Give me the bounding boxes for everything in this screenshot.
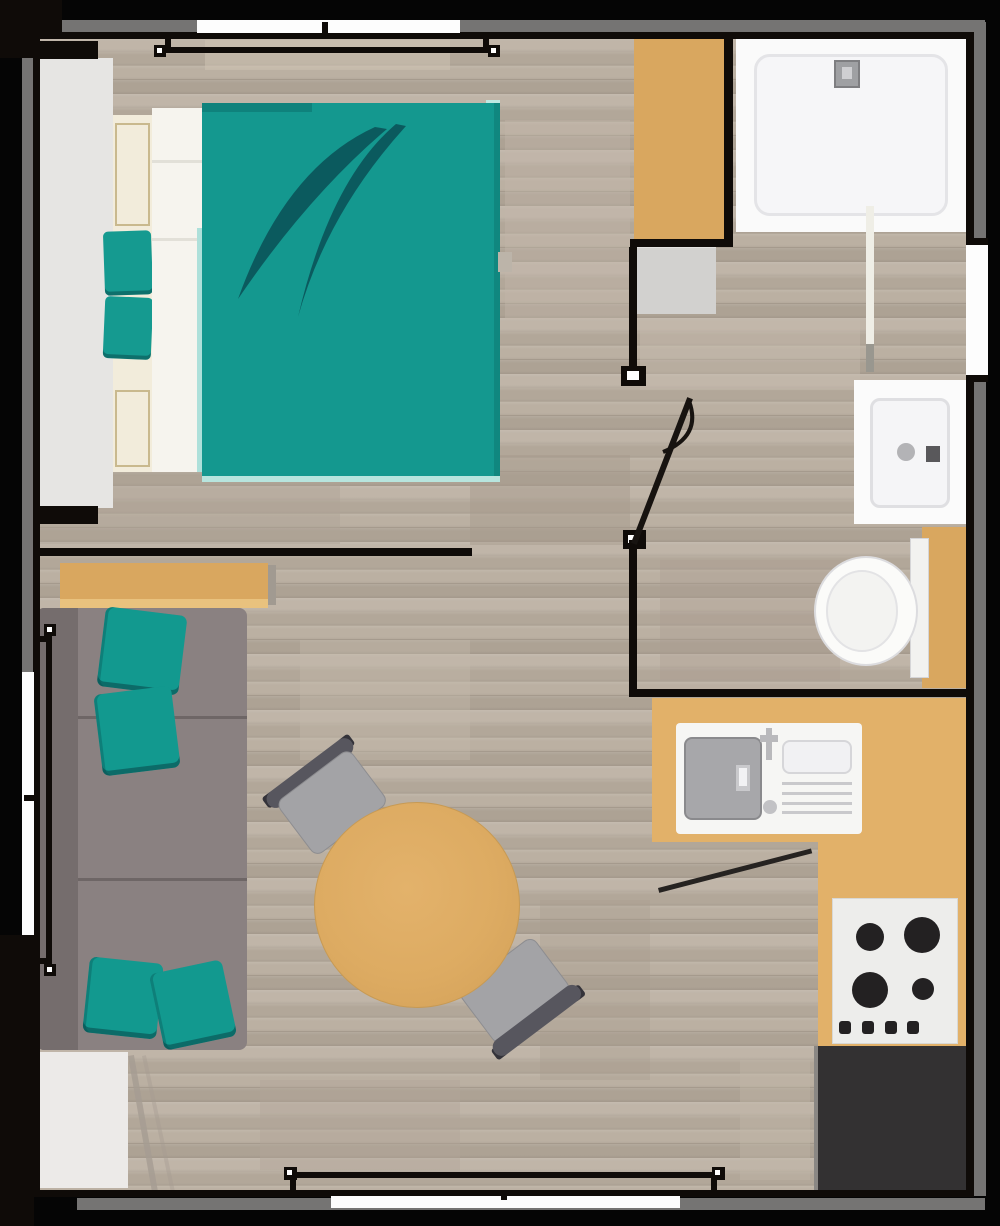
window-tick xyxy=(501,1192,507,1200)
window-rail-top xyxy=(165,47,489,53)
window-cap xyxy=(966,375,988,382)
wall-bedroom-divider xyxy=(33,548,472,556)
floor-plank-patch xyxy=(260,1080,460,1170)
washbasin xyxy=(854,380,966,524)
sofa-seam xyxy=(78,878,247,881)
faucet-icon xyxy=(766,728,772,760)
wall-bathroom xyxy=(629,540,637,697)
rail-bracket-dot xyxy=(47,627,52,632)
sheet-fold xyxy=(152,160,205,163)
sofa-cushion xyxy=(96,606,187,695)
console-edge xyxy=(60,599,268,608)
floor-plank-patch xyxy=(640,320,860,390)
rail-bracket xyxy=(712,1167,725,1180)
bed-pillow xyxy=(103,296,154,360)
rail-bracket-dot xyxy=(491,48,496,53)
wall-band-right xyxy=(974,22,986,1196)
wall-top xyxy=(33,32,973,39)
console-shadow xyxy=(268,565,276,605)
drainer-groove xyxy=(782,802,852,805)
cooktop-knob-icon xyxy=(907,1021,919,1034)
window-tick xyxy=(24,795,34,801)
basin-faucet-icon xyxy=(926,446,940,462)
sofa-cushion xyxy=(93,686,180,777)
rail-bracket xyxy=(488,45,500,57)
rail-bracket-dot xyxy=(715,1170,720,1175)
cooktop-knob-icon xyxy=(862,1021,874,1034)
rail-bracket-dot xyxy=(157,48,162,53)
wall-bathroom-bottom xyxy=(629,689,974,697)
wardrobe xyxy=(37,58,113,508)
rail-stub xyxy=(290,1178,296,1193)
bed-pillow xyxy=(103,230,153,296)
basin-drain-icon xyxy=(897,443,915,461)
drainer-groove xyxy=(782,782,852,785)
rail-bracket xyxy=(44,624,56,636)
burner-icon xyxy=(852,972,888,1008)
nightstand xyxy=(115,123,150,226)
cooktop-knob-icon xyxy=(839,1021,851,1034)
rail-bracket xyxy=(44,964,56,976)
cooktop xyxy=(832,898,958,1044)
cooktop-knob-icon xyxy=(885,1021,897,1034)
appliance-block xyxy=(818,1046,966,1192)
sofa-cushion xyxy=(149,959,238,1051)
rail-stub xyxy=(39,636,52,642)
appliance-edge xyxy=(814,1046,818,1192)
rail-bracket-dot xyxy=(287,1170,292,1175)
floor-plank-patch xyxy=(660,560,840,680)
window-cap xyxy=(966,238,988,245)
rail-stub xyxy=(711,1178,717,1193)
nightstand xyxy=(115,390,150,467)
window-right xyxy=(966,244,988,376)
door-jamb-notch xyxy=(627,371,639,380)
floor-plank-patch xyxy=(300,640,470,760)
burner-icon xyxy=(856,923,884,951)
drainer-groove xyxy=(782,792,852,795)
window-rail-bottom xyxy=(290,1172,717,1178)
floor-plank-patch xyxy=(205,40,450,70)
wall-bathroom xyxy=(724,33,733,247)
window-left xyxy=(22,672,34,935)
faucet-base-icon xyxy=(763,800,777,814)
wardrobe-top-edge xyxy=(37,41,98,59)
duvet-side-fold xyxy=(494,103,500,476)
window-tick xyxy=(322,22,328,37)
dresser xyxy=(637,246,716,314)
rail-bracket-dot xyxy=(47,967,52,972)
wall-bathroom xyxy=(629,247,637,384)
shower-drain-center xyxy=(842,67,852,79)
duvet-top-fold xyxy=(202,103,312,112)
floor-shadow xyxy=(498,252,512,272)
floor-plan xyxy=(0,0,1000,1226)
window-rail-left xyxy=(46,636,52,964)
window-top xyxy=(197,20,460,33)
kitchen-sink-unit xyxy=(676,723,862,834)
rail-bracket xyxy=(154,45,166,57)
shower-tray xyxy=(736,38,966,232)
dining-table xyxy=(314,802,520,1008)
wall-bathroom xyxy=(630,239,733,247)
drainer-groove xyxy=(782,811,852,814)
sofa-cushion xyxy=(82,956,164,1039)
sink-basin xyxy=(684,737,762,820)
sink-basin-detail xyxy=(739,768,747,786)
burner-icon xyxy=(912,978,934,1000)
console-table xyxy=(60,563,268,601)
shower-drain-icon xyxy=(834,60,860,88)
tall-cabinet xyxy=(634,36,724,240)
wall-left xyxy=(33,32,40,1197)
rug xyxy=(33,1052,128,1188)
sofa-backrest xyxy=(36,608,78,1050)
bed-duvet xyxy=(202,103,500,476)
burner-icon xyxy=(904,917,940,953)
floor-plank-patch xyxy=(505,120,630,320)
corner-block xyxy=(0,935,34,1226)
shower-glass-end xyxy=(866,344,874,372)
floor-plank-patch xyxy=(740,1060,810,1180)
wall-right xyxy=(966,32,974,1197)
wardrobe-bottom-edge xyxy=(37,506,98,524)
drainer-tray xyxy=(782,740,852,774)
toilet-tank xyxy=(910,538,929,678)
rail-bracket xyxy=(284,1167,297,1180)
